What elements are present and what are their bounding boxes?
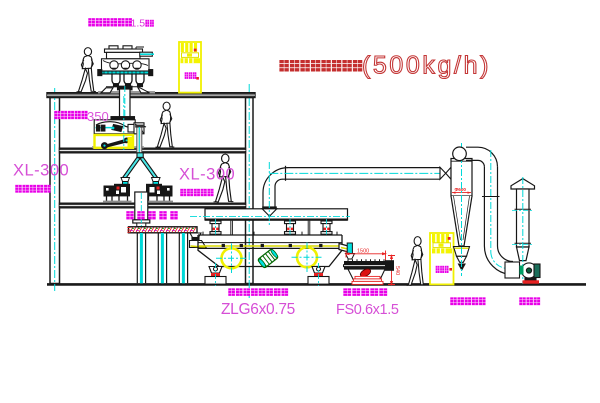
svg-text:1500: 1500	[357, 249, 369, 255]
svg-text:XL-300: XL-300	[179, 166, 235, 184]
svg-text:FS0.6x1.5: FS0.6x1.5	[336, 302, 399, 318]
svg-text:1.5: 1.5	[131, 18, 146, 30]
svg-text:540: 540	[394, 266, 400, 275]
svg-text:350: 350	[87, 109, 109, 124]
svg-text:XL-300: XL-300	[13, 162, 69, 180]
svg-text:ZLG6x0.75: ZLG6x0.75	[221, 301, 295, 318]
svg-text:Φ600: Φ600	[455, 187, 467, 192]
svg-text:(500kg/h): (500kg/h)	[362, 52, 491, 80]
